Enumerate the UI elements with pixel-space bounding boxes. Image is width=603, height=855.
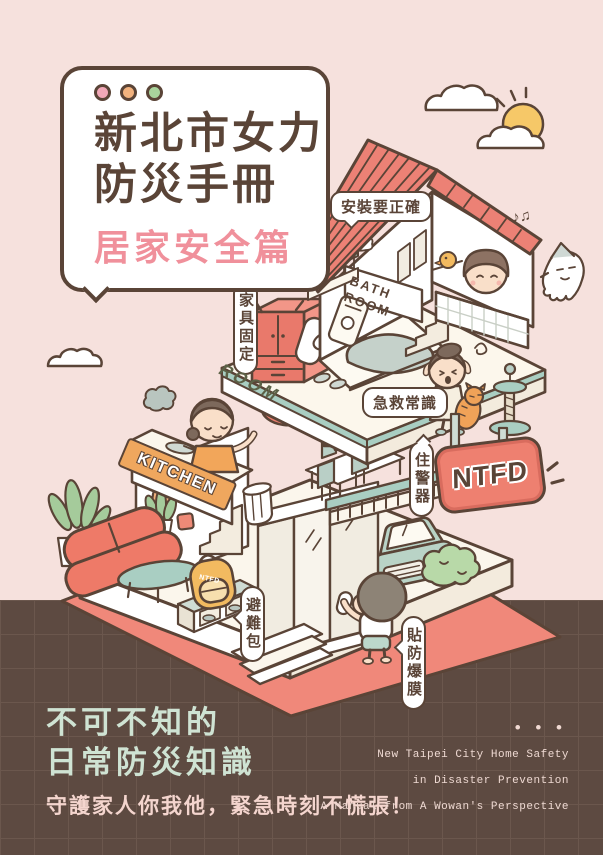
label-install-correctly: 安裝要正確 [330,191,432,222]
poster-title: 新北市女力 防災手冊 [94,109,326,210]
title-line-2: 防災手冊 [94,160,326,211]
label-first-aid: 急救常識 [362,387,448,418]
footer-headline: 不可不知的 日常防災知識 [46,703,256,782]
label-shatterproof-film: 貼防爆膜 [401,616,426,710]
footer-dots: • • • [515,718,567,738]
music-notes-icon: ♪♫ [511,207,532,226]
bush [422,545,479,586]
cloud-top-icon [426,86,498,110]
title-card: 新北市女力 防災手冊 居家安全篇 [60,66,330,292]
footer-english-line1: New Taipei City Home Safety [320,743,569,769]
ghost-icon [541,243,584,300]
footer-english-line3: A Manual from A Wowan's Perspective [320,795,569,821]
title-subtitle: 居家安全篇 [94,219,326,271]
window-dot-green [146,84,163,101]
footer-headline-line1: 不可不知的 [46,703,256,743]
footer-headline-line2: 日常防災知識 [46,743,256,783]
label-go-bag: 避難包 [240,586,265,662]
label-secure-furniture: 家具固定 [233,281,258,375]
footer-english-line2: in Disaster Prevention [320,769,569,795]
label-smoke-alarm: 住警器 [409,441,434,517]
window-dot-orange [120,84,137,101]
ntfd-sign-text: NTFD [452,455,528,495]
poster-root: 新北市女力 防災手冊 居家安全篇 安裝要正確 BATH ROOM 家具固定 RO… [0,0,603,855]
cloud-left-icon [48,349,102,366]
trash-bin [242,481,272,524]
ntfd-sign: NTFD [432,435,547,516]
title-line-1: 新北市女力 [94,109,326,160]
footer-english: New Taipei City Home Safety in Disaster … [320,743,569,821]
window-dot-pink [94,84,111,101]
window-dots [94,84,326,101]
